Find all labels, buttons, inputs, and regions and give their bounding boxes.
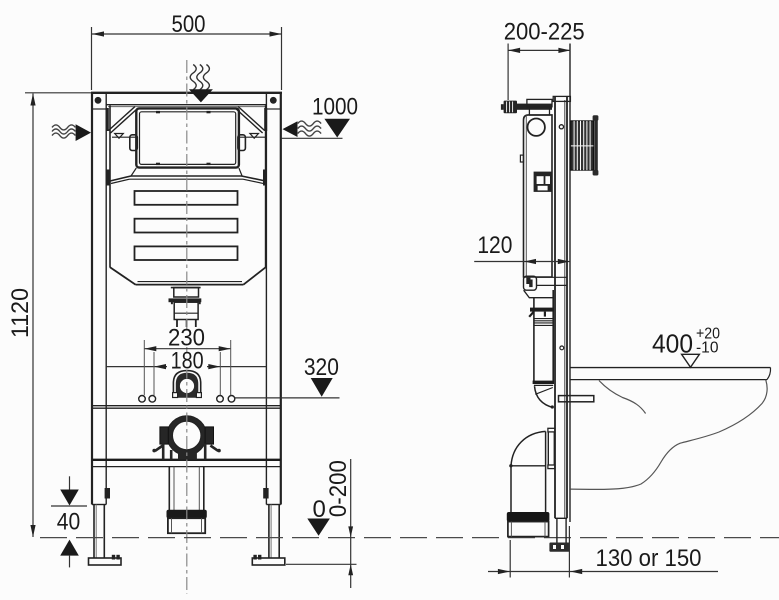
svg-text:400: 400 bbox=[652, 329, 693, 359]
svg-text:-10: -10 bbox=[696, 340, 719, 357]
svg-text:200-225: 200-225 bbox=[504, 19, 585, 46]
svg-text:320: 320 bbox=[304, 354, 339, 381]
svg-text:1120: 1120 bbox=[7, 288, 34, 338]
svg-text:130 or 150: 130 or 150 bbox=[596, 545, 702, 572]
svg-text:40: 40 bbox=[57, 509, 81, 536]
svg-text:120: 120 bbox=[477, 232, 512, 259]
svg-text:0: 0 bbox=[313, 496, 326, 523]
svg-text:180: 180 bbox=[171, 348, 204, 375]
svg-text:0-200: 0-200 bbox=[325, 460, 352, 517]
svg-text:1000: 1000 bbox=[312, 94, 358, 121]
svg-text:500: 500 bbox=[172, 11, 206, 38]
